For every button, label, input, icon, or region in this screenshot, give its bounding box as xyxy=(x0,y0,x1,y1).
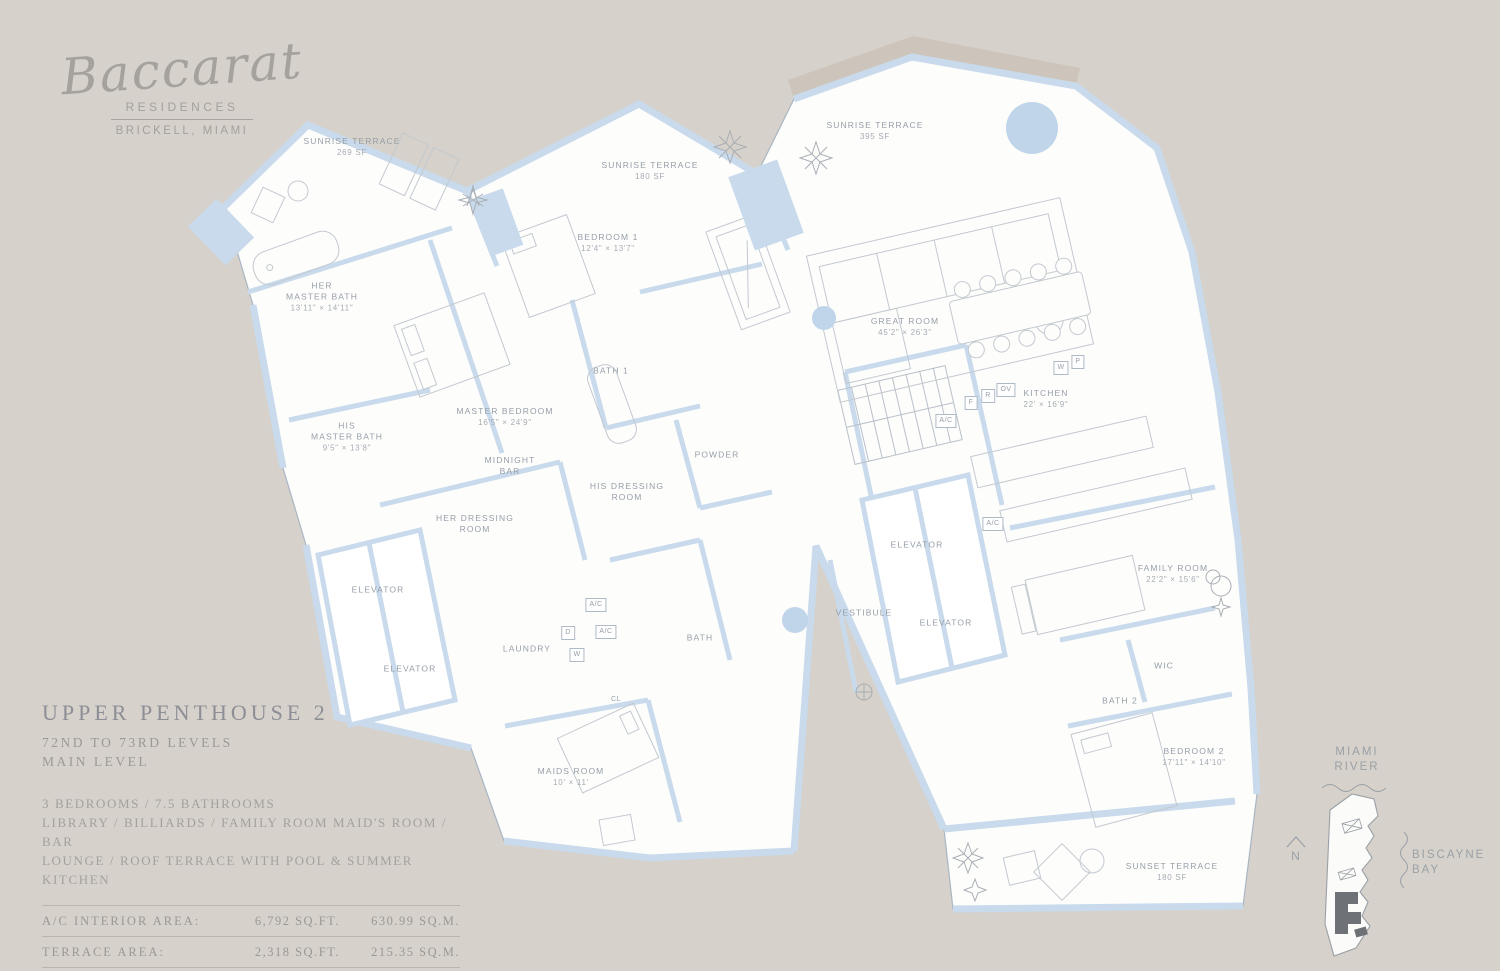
page-title: UPPER PENTHOUSE 2 xyxy=(42,700,462,726)
unit-features: 3 BEDROOMS / 7.5 BATHROOMS LIBRARY / BIL… xyxy=(42,794,462,889)
area-label: A/C INTERIOR AREA: xyxy=(42,914,215,929)
unit-levels: 72ND TO 73RD LEVELS xyxy=(42,735,462,751)
area-sqm: 215.35 SQ.M. xyxy=(340,945,460,960)
keyplan-river-label: MIAMI RIVER xyxy=(1314,745,1400,775)
area-table: A/C INTERIOR AREA: 6,792 SQ.FT. 630.99 S… xyxy=(42,905,460,971)
unit-info: UPPER PENTHOUSE 2 72ND TO 73RD LEVELS MA… xyxy=(42,700,462,971)
area-row-interior: A/C INTERIOR AREA: 6,792 SQ.FT. 630.99 S… xyxy=(42,905,460,936)
area-row-total: TOTAL RESIDENCE: 9,110 SQ.FT. 846.34 SQ.… xyxy=(42,967,460,971)
north-label: N xyxy=(1284,849,1308,863)
area-sqft: 2,318 SQ.FT. xyxy=(215,945,340,960)
area-label: TERRACE AREA: xyxy=(42,945,215,960)
area-row-terrace: TERRACE AREA: 2,318 SQ.FT. 215.35 SQ.M. xyxy=(42,936,460,967)
keyplan-building-icon xyxy=(1318,790,1390,965)
feature-line: LIBRARY / BILLIARDS / FAMILY ROOM MAID'S… xyxy=(42,813,462,851)
page: Baccarat RESIDENCES BRICKELL, MIAMI xyxy=(0,0,1500,971)
bay-wave-icon xyxy=(1398,830,1410,892)
area-sqft: 6,792 SQ.FT. xyxy=(215,914,340,929)
unit-level-note: MAIN LEVEL xyxy=(42,754,462,770)
keyplan-bay-label: BISCAYNE BAY xyxy=(1412,848,1485,878)
feature-line: LOUNGE / ROOF TERRACE WITH POOL & SUMMER… xyxy=(42,851,462,889)
north-chevron-icon xyxy=(1285,835,1307,848)
north-arrow: N xyxy=(1284,835,1308,863)
feature-line: 3 BEDROOMS / 7.5 BATHROOMS xyxy=(42,794,462,813)
area-sqm: 630.99 SQ.M. xyxy=(340,914,460,929)
keyplan: MIAMI RIVER N BISCAYNE xyxy=(1270,735,1490,965)
